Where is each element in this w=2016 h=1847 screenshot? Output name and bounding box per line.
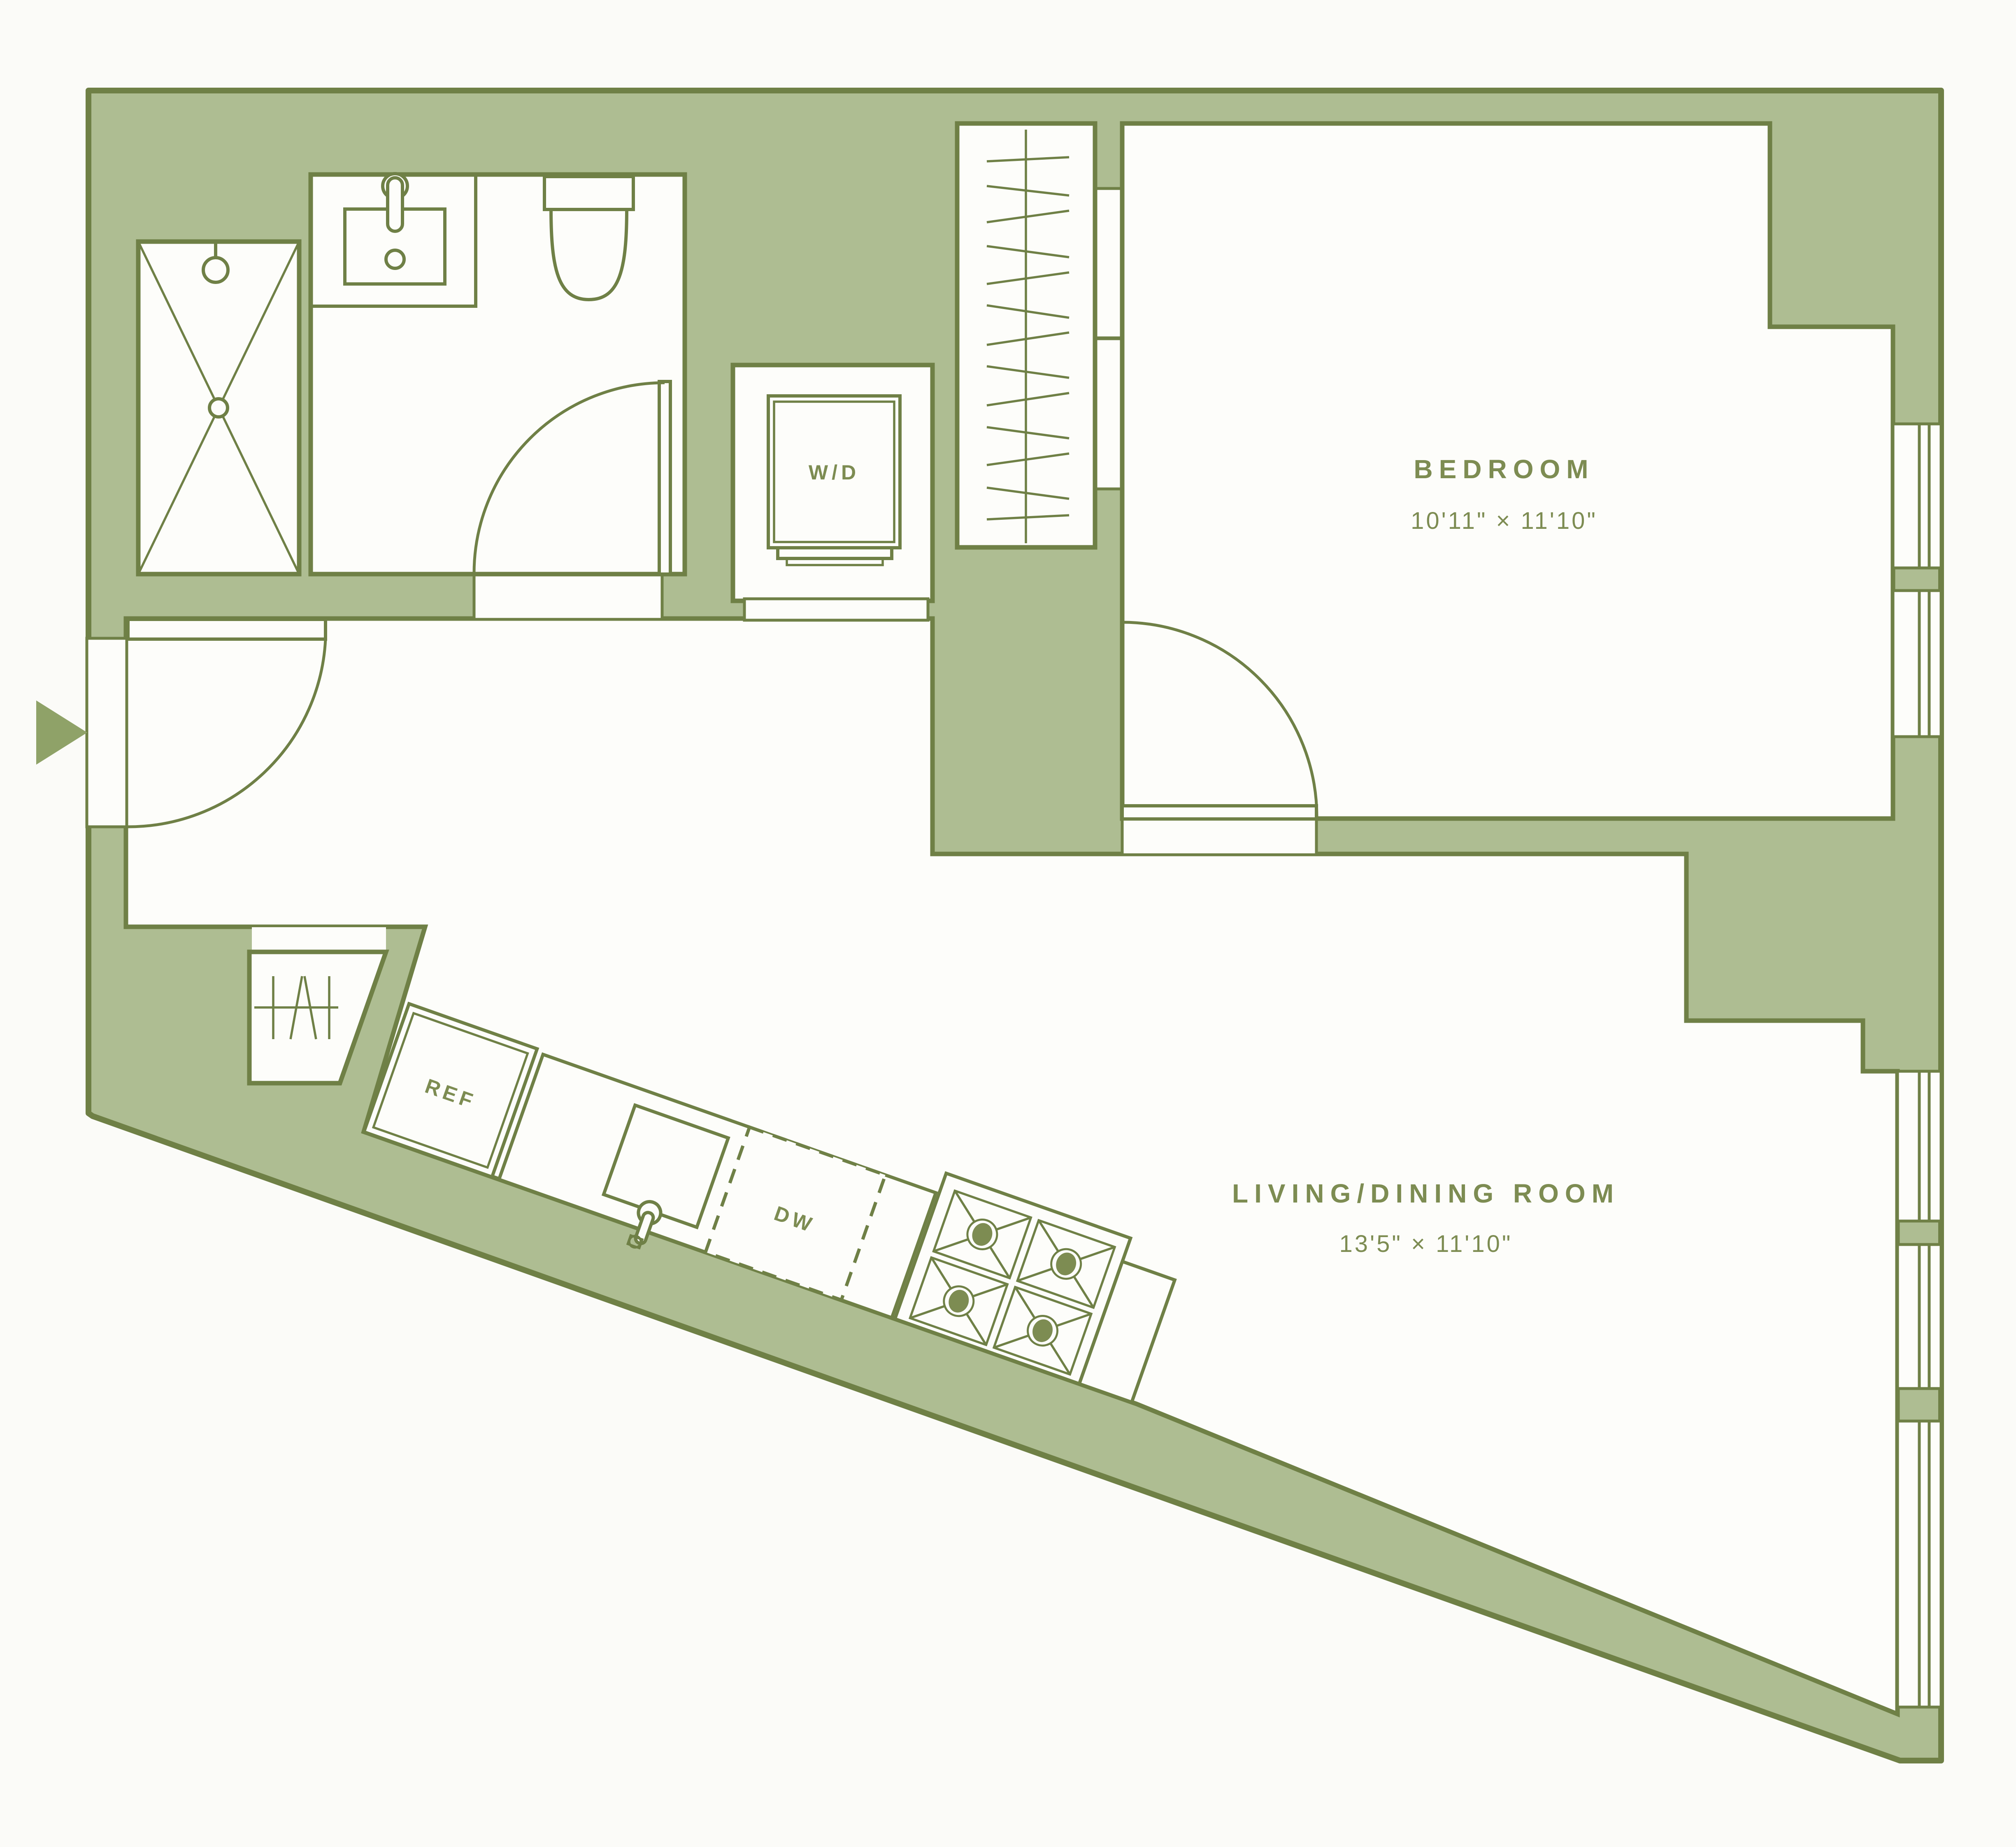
living-room-windows xyxy=(1897,1071,1941,1707)
coat-closet-opening xyxy=(252,927,386,953)
living-dining-dimensions: 13'5" × 11'10" xyxy=(1339,1231,1513,1257)
bedroom-dimensions: 10'11" × 11'10" xyxy=(1411,507,1597,534)
washer-dryer-label: W/D xyxy=(809,461,860,484)
laundry-opening xyxy=(744,599,928,620)
bedroom-door-opening xyxy=(1122,818,1316,855)
living-dining-label: LIVING/DINING ROOM xyxy=(1232,1179,1620,1208)
floor-plan: W/D xyxy=(0,0,2016,1847)
entry-opening xyxy=(87,638,127,827)
bedroom-label: BEDROOM xyxy=(1414,454,1594,484)
bathroom-floor xyxy=(311,174,685,574)
floor-plan-page: W/D xyxy=(0,0,2016,1847)
bathroom-door-opening xyxy=(474,575,662,619)
closet-sliding-doors xyxy=(1096,188,1122,489)
